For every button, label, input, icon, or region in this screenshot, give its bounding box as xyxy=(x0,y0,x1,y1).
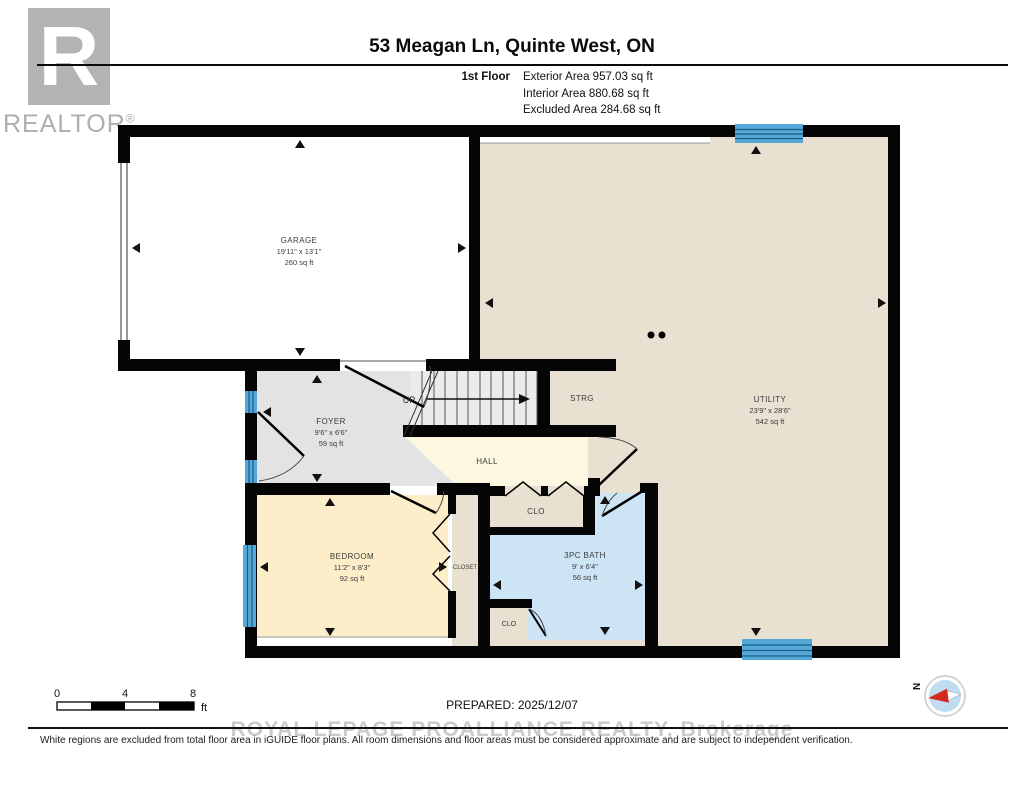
scale-tick-4: 4 xyxy=(122,688,128,700)
clo-hall-label: CLO xyxy=(527,507,545,516)
compass-icon: N xyxy=(912,676,965,716)
hall-label: HALL xyxy=(476,457,498,466)
floor-plan-drawing: GARAGE 19'11" x 13'1" 260 sq ft UTILITY … xyxy=(0,0,1024,791)
scale-bar: 0 4 8 ft xyxy=(54,688,207,714)
clo-bath-label: CLO xyxy=(502,621,517,628)
scale-unit: ft xyxy=(201,702,207,714)
scale-tick-0: 0 xyxy=(54,688,60,700)
svg-text:9'6" x 6'6": 9'6" x 6'6" xyxy=(315,428,348,437)
svg-text:19'11" x 13'1": 19'11" x 13'1" xyxy=(277,247,322,256)
svg-text:59 sq ft: 59 sq ft xyxy=(319,439,345,448)
bath-floor-entry xyxy=(595,493,645,533)
svg-text:92 sq ft: 92 sq ft xyxy=(340,574,366,583)
utility-top-window xyxy=(735,124,803,143)
svg-text:260 sq ft: 260 sq ft xyxy=(285,258,315,267)
utility-edge-strip xyxy=(480,136,710,143)
strg-label: STRG xyxy=(570,394,594,403)
svg-text:542 sq ft: 542 sq ft xyxy=(756,417,786,426)
svg-text:56 sq ft: 56 sq ft xyxy=(573,573,599,582)
bedroom-edge-strip xyxy=(257,637,448,646)
svg-text:FOYER: FOYER xyxy=(316,417,346,426)
floor-plan-page: R REALTOR® 53 Meagan Ln, Quinte West, ON… xyxy=(0,0,1024,791)
svg-text:UTILITY: UTILITY xyxy=(754,395,787,404)
svg-text:11'2" x 8'3": 11'2" x 8'3" xyxy=(334,563,371,572)
compass-north-label: N xyxy=(912,683,923,690)
closet-label: CLOSET xyxy=(453,565,477,571)
foyer-label: FOYER 9'6" x 6'6" 59 sq ft xyxy=(315,417,348,448)
svg-text:GARAGE: GARAGE xyxy=(281,236,318,245)
bedroom-window xyxy=(243,545,256,627)
svg-text:9' x 6'4": 9' x 6'4" xyxy=(572,562,598,571)
utility-bottom-window xyxy=(742,639,812,660)
scale-tick-8: 8 xyxy=(190,688,196,700)
svg-text:BEDROOM: BEDROOM xyxy=(330,552,374,561)
up-label: UP xyxy=(403,395,416,405)
svg-text:23'9" x 28'6": 23'9" x 28'6" xyxy=(749,406,790,415)
svg-text:3PC BATH: 3PC BATH xyxy=(564,551,606,560)
